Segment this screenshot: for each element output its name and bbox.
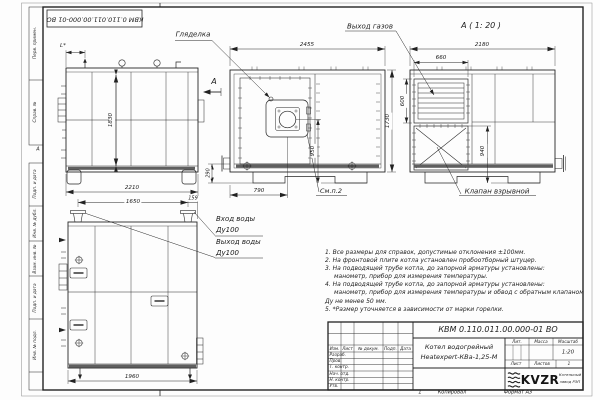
dim-1730: 1730	[386, 112, 392, 129]
dim-1830: 1830	[109, 111, 115, 128]
sheets-value: 1	[568, 362, 571, 366]
product-name-line1: Котел водогрейный	[425, 344, 493, 351]
scale-value: 1:20	[562, 350, 574, 356]
rear-view-title: А ( 1: 20 )	[461, 22, 501, 30]
dim-159: 159	[187, 197, 199, 202]
gas-outlet-louver	[414, 79, 468, 123]
row-label: Утв.	[330, 384, 339, 388]
note-line: 3. На подводящей трубе котла, до запорно…	[325, 265, 584, 273]
label-water-inlet-dn: Ду100	[216, 227, 239, 234]
company-logo: KVZR	[521, 374, 560, 386]
note-line: 5. *Размер уточняется в зависимости от м…	[325, 306, 584, 314]
footer-format: Формат А3	[504, 391, 532, 396]
col-date: Дата	[400, 346, 411, 350]
water-pipe-flange	[181, 211, 196, 214]
logo-caption-line1: Котельный	[559, 373, 581, 377]
sheets-label: Листов	[534, 362, 550, 366]
margin-label: Подп. и дата	[34, 169, 38, 198]
note-line: 2. На фронтовой плите котла установлен п…	[325, 257, 584, 265]
margin-label: Перв. примен.	[34, 27, 38, 59]
margin-label: Подп. и дата	[34, 283, 38, 312]
label-water-outlet-dn: Ду100	[216, 250, 239, 257]
water-pipe-flange	[71, 211, 86, 214]
dim-790: 790	[252, 189, 266, 195]
col-sign: Подп.	[384, 346, 397, 350]
row-label: Пров.	[330, 359, 342, 363]
coil-icon	[508, 373, 520, 387]
note-line: 1. Все размеры для справок, допустимые о…	[325, 249, 584, 257]
sight-glass-icon	[269, 97, 273, 101]
label-explosion-valve: Клапан взрывной	[465, 188, 530, 195]
label-gas-outlet: Выход газов	[347, 23, 393, 30]
zone-letter: А	[36, 148, 39, 153]
view-arrow-letter: А	[211, 78, 216, 86]
row-label: Т. контр.	[330, 365, 349, 369]
note-line: манометр, прибор для измерения температу…	[334, 289, 584, 297]
dim-600: 600	[401, 94, 407, 108]
dim-290: 290	[206, 167, 211, 179]
dim-L: L*	[59, 44, 68, 50]
margin-label: Инв. № подл.	[34, 330, 38, 360]
drawing-frame	[29, 3, 583, 396]
row-label: Н. контр.	[330, 378, 350, 382]
drawing-linework	[0, 0, 600, 400]
dim-1960: 1960	[123, 375, 140, 381]
note-line: манометр, прибор для измерения температу…	[334, 273, 584, 281]
label-see-note: См.п.2	[320, 187, 342, 194]
margin-label: Инв. № дубл.	[34, 208, 38, 237]
sheet-label: Лист	[511, 362, 522, 366]
dim-2180: 2180	[473, 43, 490, 49]
lit-label: Лит.	[512, 339, 522, 343]
title-designation: КВМ 0.110.011.00.000-01 ВО	[438, 326, 557, 334]
dim-660: 660	[434, 56, 448, 62]
dim-2210: 2210	[123, 186, 140, 192]
note-line: 4. На подводящей трубе котла, до запорно…	[325, 281, 584, 289]
dim-940: 940	[481, 144, 487, 158]
technical-notes: 1. Все размеры для справок, допустимые о…	[325, 249, 584, 314]
row-label: Нач. отд.	[330, 372, 350, 376]
col-list: Лист	[342, 346, 353, 350]
margin-label: Справ. №	[34, 102, 38, 123]
note-line: Ду не менее 50 мм.	[325, 298, 584, 306]
label-water-outlet: Выход воды	[216, 239, 261, 246]
footer-copied: Копировал	[438, 391, 467, 396]
scale-label: Масштаб	[558, 339, 578, 343]
view-rear	[345, 31, 566, 196]
footer-num: 1	[418, 391, 421, 396]
row-label: Разраб.	[330, 353, 346, 357]
drawing-sheet: КВМ 0.110.011.00.000-01 ВО А Перв. приме…	[0, 0, 600, 400]
mass-label: Масса	[534, 339, 547, 343]
view-side-top	[58, 50, 221, 196]
label-sight-glass: Гляделка	[176, 31, 211, 38]
dim-950: 950	[311, 144, 317, 158]
logo-caption-line2: завод РЭП	[560, 380, 581, 384]
col-doc: № докум.	[358, 346, 379, 350]
product-name-line2: Heatexpert-КВа-1,25-М	[421, 353, 498, 360]
dim-1650: 1650	[124, 200, 141, 206]
margin-label: Взам. инв. №	[34, 244, 38, 273]
col-izm: Изм.	[330, 346, 340, 350]
label-water-inlet: Вход воды	[216, 216, 255, 223]
sheet-edge	[22, 3, 593, 396]
dim-2455: 2455	[298, 43, 315, 49]
top-designation: КВМ 0.110.011.00.000-01 ВО	[46, 15, 143, 22]
